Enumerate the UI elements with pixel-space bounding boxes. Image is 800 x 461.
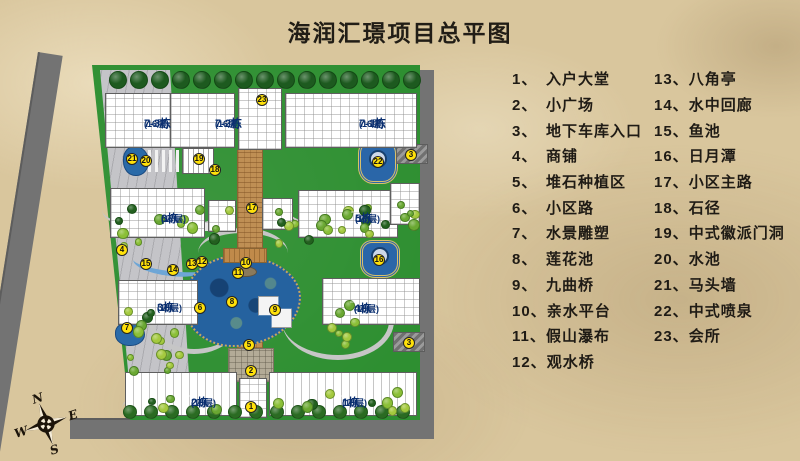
- building-7-1: [285, 93, 417, 148]
- tree-icon: [156, 349, 167, 360]
- tree-icon: [235, 71, 253, 89]
- map-marker-8: 8: [226, 296, 238, 308]
- map-marker-4: 4: [116, 244, 128, 256]
- legend-item-number: 12、: [512, 351, 547, 372]
- legend-item-7: 7、水景雕塑: [512, 220, 642, 246]
- tree-icon: [135, 238, 142, 245]
- map-marker-18: 18: [209, 164, 221, 176]
- tree-icon: [381, 220, 390, 229]
- legend-item-number: 21、: [654, 274, 689, 295]
- map-marker-1: 1: [245, 401, 257, 413]
- legend-item-9: 9、九曲桥: [512, 272, 642, 298]
- tree-icon: [148, 398, 156, 406]
- map-marker-21: 21: [126, 153, 138, 165]
- legend-item-name: 亲水平台: [547, 300, 611, 321]
- legend-item-name: 水景雕塑: [546, 222, 610, 243]
- tree-icon: [338, 226, 346, 234]
- legend-item-number: 19、: [654, 222, 689, 243]
- legend-item-number: 9、: [512, 274, 546, 295]
- tree-icon: [123, 405, 137, 419]
- legend-item-2: 2、小广场: [512, 92, 642, 118]
- legend-item-number: 17、: [654, 171, 689, 192]
- tree-icon: [172, 71, 190, 89]
- legend-item-name: 马头墙: [689, 274, 737, 295]
- legend-item-23: 23、会所: [654, 323, 785, 349]
- tree-icon: [273, 398, 284, 409]
- legend-item-22: 22、中式喷泉: [654, 297, 785, 323]
- legend-item-number: 14、: [654, 94, 689, 115]
- tree-icon: [368, 399, 376, 407]
- tree-icon: [166, 395, 174, 403]
- tree-icon: [323, 225, 333, 235]
- tree-icon: [325, 389, 335, 399]
- legend-item-name: 地下车库入口: [546, 120, 642, 141]
- legend-item-number: 18、: [654, 197, 689, 218]
- legend-item-12: 12、观水桥: [512, 349, 642, 375]
- tree-icon: [187, 222, 198, 233]
- legend-item-15: 15、鱼池: [654, 117, 785, 143]
- tree-icon: [129, 366, 139, 376]
- tree-icon: [144, 405, 158, 419]
- legend-item-name: 日月潭: [689, 145, 737, 166]
- tree-icon: [256, 71, 274, 89]
- tree-icon: [212, 225, 220, 233]
- map-marker-11: 11: [232, 267, 244, 279]
- tree-icon: [388, 406, 398, 416]
- legend-item-13: 13、八角亭: [654, 66, 785, 92]
- legend-item-number: 1、: [512, 68, 546, 89]
- tree-icon: [228, 405, 242, 419]
- legend-item-17: 17、小区主路: [654, 169, 785, 195]
- tree-icon: [151, 71, 169, 89]
- legend-item-name: 会所: [689, 325, 721, 346]
- map-marker-17: 17: [246, 202, 258, 214]
- legend-item-name: 中式喷泉: [689, 300, 753, 321]
- tree-icon: [319, 71, 337, 89]
- map-marker-3: 3: [403, 337, 415, 349]
- legend-item-18: 18、石径: [654, 194, 785, 220]
- map-marker-16: 16: [373, 254, 385, 266]
- legend-item-3: 3、地下车库入口: [512, 117, 642, 143]
- map-marker-9: 9: [269, 304, 281, 316]
- legend-item-name: 九曲桥: [546, 274, 594, 295]
- legend-item-name: 小区路: [546, 197, 594, 218]
- map-marker-14: 14: [167, 264, 179, 276]
- map-marker-20: 20: [140, 155, 152, 167]
- map-marker-12: 12: [196, 256, 208, 268]
- tree-icon: [298, 71, 316, 89]
- legend-item-1: 1、入户大堂: [512, 66, 642, 92]
- tree-icon: [408, 219, 420, 231]
- tree-icon: [277, 71, 295, 89]
- site-plan-map: 7-3栋 (16层)7-2栋 (16层)7-1栋 (16层)6栋 (17层)5栋…: [30, 60, 490, 461]
- water-corridor: [148, 150, 180, 172]
- legend-item-name: 中式徽派门洞: [689, 222, 785, 243]
- tree-icon: [214, 71, 232, 89]
- legend-item-number: 22、: [654, 300, 689, 321]
- legend-item-name: 小区主路: [689, 171, 753, 192]
- tree-icon: [302, 401, 313, 412]
- tree-icon: [209, 233, 220, 244]
- legend-item-19: 19、中式徽派门洞: [654, 220, 785, 246]
- legend-item-number: 20、: [654, 248, 689, 269]
- legend-item-number: 16、: [654, 145, 689, 166]
- tree-icon: [403, 71, 421, 89]
- compass-south-label: S: [48, 442, 61, 458]
- legend-item-name: 水池: [689, 248, 721, 269]
- legend-item-number: 10、: [512, 300, 547, 321]
- legend-item-14: 14、水中回廊: [654, 92, 785, 118]
- legend-column-2: 13、八角亭14、水中回廊15、鱼池16、日月潭17、小区主路18、石径19、中…: [654, 66, 785, 349]
- legend-item-name: 假山瀑布: [546, 325, 610, 346]
- map-marker-3: 3: [405, 149, 417, 161]
- page-title: 海润汇璟项目总平图: [0, 14, 800, 48]
- legend-item-number: 7、: [512, 222, 546, 243]
- tree-icon: [158, 403, 169, 414]
- legend-item-number: 4、: [512, 145, 546, 166]
- legend-item-number: 6、: [512, 197, 546, 218]
- legend-item-number: 2、: [512, 94, 546, 115]
- map-marker-5: 5: [243, 339, 255, 351]
- tree-icon: [193, 71, 211, 89]
- map-marker-22: 22: [372, 156, 384, 168]
- legend-item-name: 小广场: [546, 94, 594, 115]
- legend-item-name: 莲花池: [546, 248, 594, 269]
- legend-item-4: 4、商铺: [512, 143, 642, 169]
- tree-icon: [130, 71, 148, 89]
- tree-icon: [275, 239, 284, 248]
- tree-icon: [361, 71, 379, 89]
- tree-icon: [175, 351, 183, 359]
- legend-item-name: 鱼池: [689, 120, 721, 141]
- tree-icon: [277, 218, 286, 227]
- map-marker-19: 19: [193, 153, 205, 165]
- tree-icon: [109, 71, 127, 89]
- legend-item-number: 23、: [654, 325, 689, 346]
- legend-item-10: 10、亲水平台: [512, 297, 642, 323]
- legend-item-number: 13、: [654, 68, 689, 89]
- tree-icon: [133, 326, 144, 337]
- legend-item-21: 21、马头墙: [654, 272, 785, 298]
- legend-item-number: 11、: [512, 325, 546, 346]
- legend-item-name: 堆石种植区: [546, 171, 626, 192]
- poster-page: { "title": "海润汇璟项目总平图", "legend": { "col…: [0, 0, 800, 461]
- legend-item-8: 8、莲花池: [512, 246, 642, 272]
- tree-icon: [166, 362, 174, 370]
- map-marker-7: 7: [121, 322, 133, 334]
- legend-item-number: 5、: [512, 171, 546, 192]
- map-marker-6: 6: [194, 302, 206, 314]
- tree-icon: [115, 217, 123, 225]
- map-marker-23: 23: [256, 94, 268, 106]
- legend-item-name: 观水桥: [547, 351, 595, 372]
- legend-column-1: 1、入户大堂2、小广场3、地下车库入口4、商铺5、堆石种植区6、小区路7、水景雕…: [512, 66, 642, 374]
- map-marker-15: 15: [140, 258, 152, 270]
- legend-item-name: 入户大堂: [546, 68, 610, 89]
- road-east: [420, 70, 434, 439]
- tree-icon: [275, 208, 283, 216]
- tree-icon: [350, 318, 359, 327]
- legend-item-5: 5、堆石种植区: [512, 169, 642, 195]
- tree-icon: [225, 206, 234, 215]
- legend-item-name: 商铺: [546, 145, 578, 166]
- tree-icon: [340, 71, 358, 89]
- tree-icon: [400, 403, 410, 413]
- legend-item-11: 11、假山瀑布: [512, 323, 642, 349]
- tree-icon: [342, 332, 352, 342]
- legend-item-name: 八角亭: [689, 68, 737, 89]
- legend-item-16: 16、日月潭: [654, 143, 785, 169]
- legend-item-number: 15、: [654, 120, 689, 141]
- legend-item-name: 水中回廊: [689, 94, 753, 115]
- tree-icon: [344, 300, 355, 311]
- legend-item-number: 3、: [512, 120, 546, 141]
- legend-item-name: 石径: [689, 197, 721, 218]
- tree-icon: [365, 230, 373, 238]
- map-marker-2: 2: [245, 365, 257, 377]
- legend-item-20: 20、水池: [654, 246, 785, 272]
- tree-icon: [382, 71, 400, 89]
- legend-item-6: 6、小区路: [512, 194, 642, 220]
- legend-item-number: 8、: [512, 248, 546, 269]
